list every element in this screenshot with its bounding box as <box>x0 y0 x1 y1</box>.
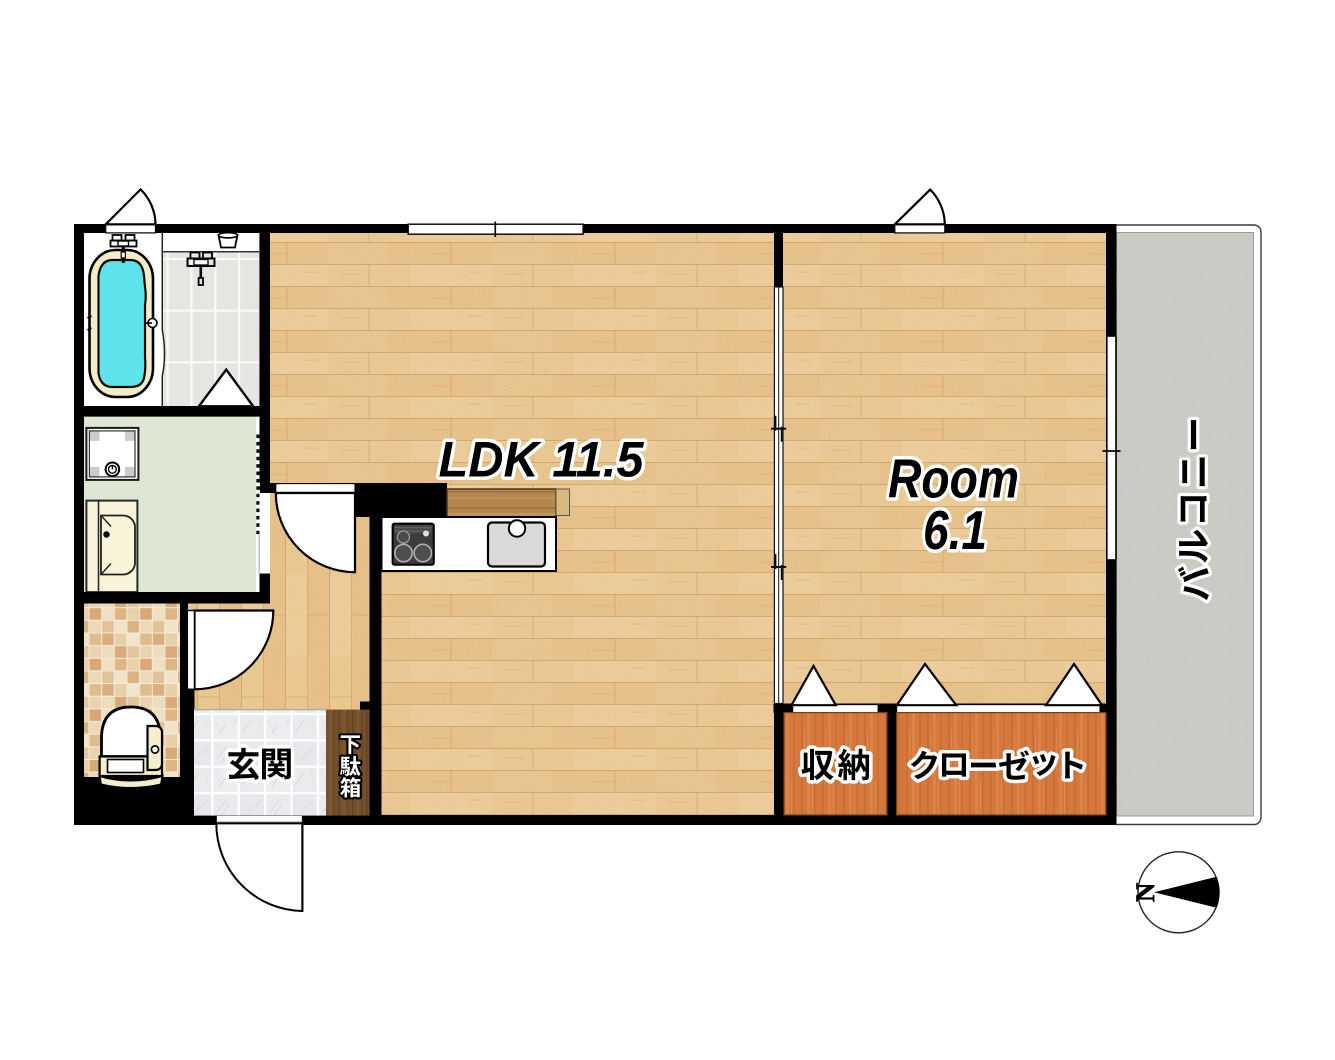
svg-text:LDK 11.5: LDK 11.5 <box>439 432 645 488</box>
svg-text:6.1: 6.1 <box>923 499 987 561</box>
